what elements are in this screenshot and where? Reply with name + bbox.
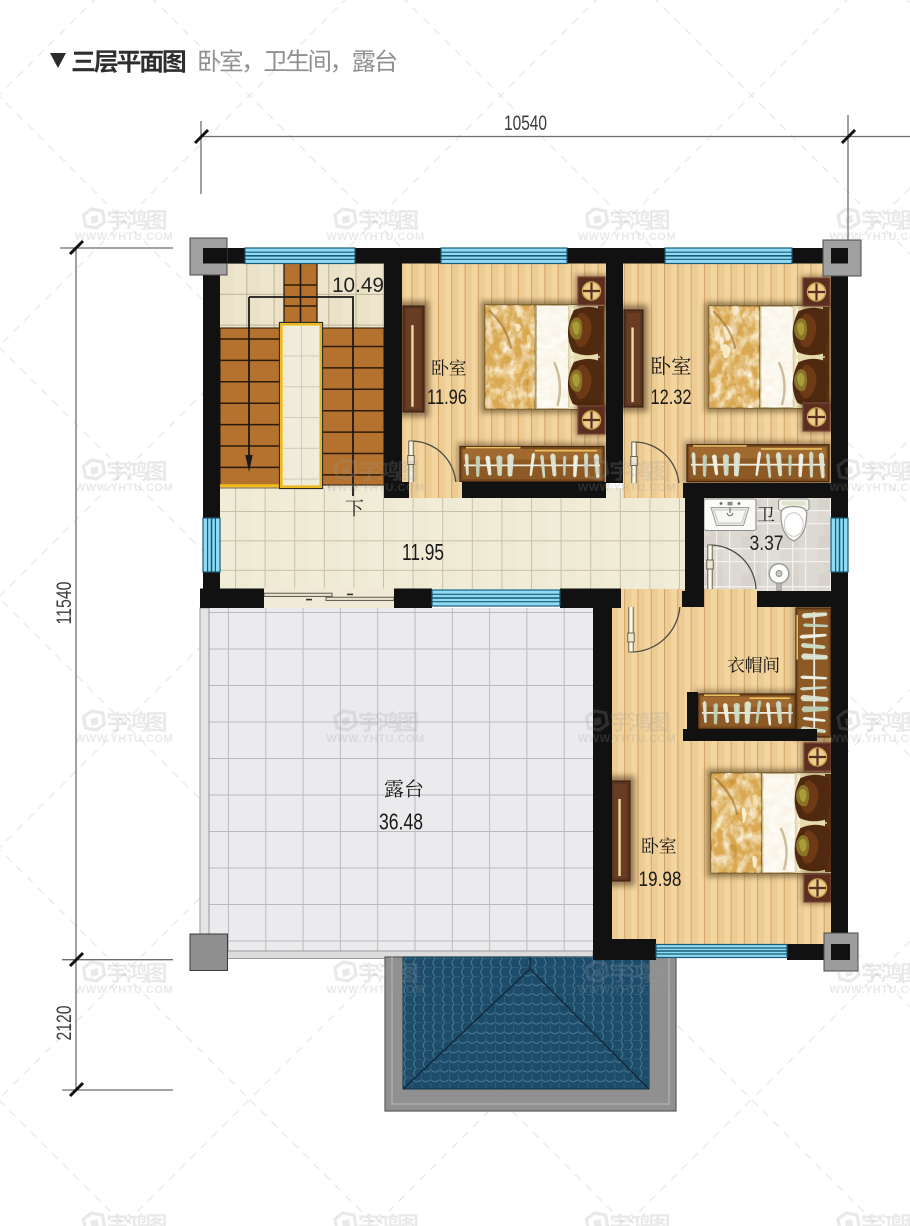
svg-text:36.48: 36.48 [379,809,423,835]
svg-text:WWW.YHTU.COM: WWW.YHTU.COM [326,733,424,745]
svg-text:WWW.YHTU.COM: WWW.YHTU.COM [326,231,424,243]
svg-text:WWW.YHTU.COM: WWW.YHTU.COM [829,482,910,494]
svg-text:WWW.YHTU.COM: WWW.YHTU.COM [829,231,910,243]
svg-text:11.96: 11.96 [427,386,467,409]
svg-text:WWW.YHTU.COM: WWW.YHTU.COM [578,482,676,494]
svg-text:11.95: 11.95 [402,539,444,565]
svg-text:WWW.YHTU.COM: WWW.YHTU.COM [578,984,676,996]
svg-text:WWW.YHTU.COM: WWW.YHTU.COM [75,231,173,243]
svg-text:WWW.YHTU.COM: WWW.YHTU.COM [578,733,676,745]
svg-text:WWW.YHTU.COM: WWW.YHTU.COM [829,984,910,996]
svg-text:2120: 2120 [53,1006,76,1041]
svg-text:11540: 11540 [53,582,76,625]
svg-text:12.32: 12.32 [651,386,692,409]
svg-text:WWW.YHTU.COM: WWW.YHTU.COM [75,733,173,745]
svg-text:10.49: 10.49 [332,274,384,297]
svg-text:19.98: 19.98 [639,868,682,891]
svg-text:WWW.YHTU.COM: WWW.YHTU.COM [578,231,676,243]
svg-text:3.37: 3.37 [750,532,784,555]
svg-text:WWW.YHTU.COM: WWW.YHTU.COM [326,984,424,996]
svg-text:WWW.YHTU.COM: WWW.YHTU.COM [75,482,173,494]
svg-text:WWW.YHTU.COM: WWW.YHTU.COM [326,482,424,494]
svg-text:10540: 10540 [504,112,547,135]
svg-text:WWW.YHTU.COM: WWW.YHTU.COM [75,984,173,996]
svg-text:WWW.YHTU.COM: WWW.YHTU.COM [829,733,910,745]
